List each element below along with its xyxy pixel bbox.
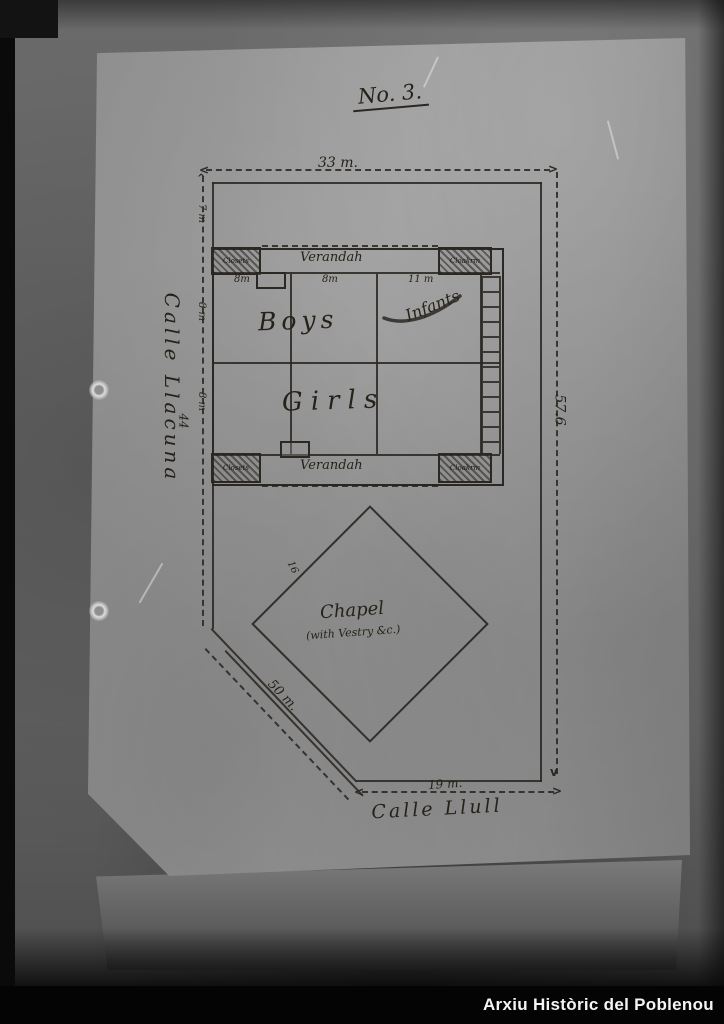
infants-flourish <box>380 292 464 332</box>
watermark-bar: Arxiu Històric del Poblenou <box>0 986 724 1024</box>
arrow-left-icon: < <box>354 786 364 798</box>
arrow-down-icon: v <box>550 766 558 778</box>
site-plan: No. 3. < > 33 m. v ^ 57.6 50 m. < > 19 m… <box>0 0 724 1024</box>
street-label-left: Calle Llacuna <box>160 248 184 528</box>
verandah-bottom-label: Verandah <box>300 458 363 473</box>
bay-width-1: 8m <box>234 274 250 285</box>
verandah-bottom-dashed-edge <box>262 485 438 487</box>
dimension-bottom-label: 19 m. <box>428 776 463 792</box>
photo-edge-bottom <box>0 928 724 988</box>
corner-room-label: Closets <box>223 464 249 472</box>
corner-room-bottom-right: Cloakrm <box>438 453 492 483</box>
watermark-text: Arxiu Històric del Poblenou <box>483 995 714 1015</box>
photo-corner-blot <box>0 0 58 38</box>
entrance-step-top <box>256 272 286 289</box>
corner-room-top-left: Closets <box>211 247 261 275</box>
dimension-row-upper: 8 m <box>196 302 207 321</box>
corner-room-label: Closets <box>223 257 249 265</box>
entrance-step-bottom <box>280 441 310 458</box>
plot-edge-right <box>540 182 542 782</box>
boundary-dashed-right <box>556 172 558 774</box>
verandah-top-label: Verandah <box>300 250 363 265</box>
corner-room-top-right: Cloakrm <box>438 247 492 275</box>
chapel-edge-dim: 16 <box>285 559 300 575</box>
plan-title: No. 3. <box>351 79 429 113</box>
photo-edge-left <box>0 0 15 1024</box>
photo-edge-top <box>0 0 724 30</box>
corner-room-label: Cloakrm <box>450 464 480 472</box>
dimension-right-label: 57.6 <box>552 394 568 425</box>
room-label-girls: Girls <box>282 384 386 418</box>
chapel-label: Chapel <box>319 598 384 623</box>
dimension-top-label: 33 m. <box>318 155 358 171</box>
archival-photo: No. 3. < > 33 m. v ^ 57.6 50 m. < > 19 m… <box>0 0 724 1024</box>
dimension-line-top <box>206 169 550 171</box>
corner-room-label: Cloakrm <box>450 257 480 265</box>
dimension-row-lower: 8 m <box>196 392 207 411</box>
partition-vertical-1 <box>290 274 292 454</box>
plot-edge-top <box>212 182 542 184</box>
corner-room-bottom-left: Closets <box>211 453 261 483</box>
column-row <box>481 276 501 454</box>
partition-vertical-2 <box>376 274 378 454</box>
bay-width-2: 8m <box>322 274 338 285</box>
room-label-boys: Boys <box>258 305 339 337</box>
photo-edge-right <box>698 0 724 1024</box>
bay-width-3: 11 m <box>408 274 433 285</box>
verandah-top-dashed-edge <box>262 245 438 247</box>
dimension-left-strip: 7 m <box>196 204 207 223</box>
arrow-up-icon: ^ <box>197 174 205 184</box>
partition-horizontal <box>212 362 500 364</box>
arrow-right-icon: > <box>552 785 562 797</box>
